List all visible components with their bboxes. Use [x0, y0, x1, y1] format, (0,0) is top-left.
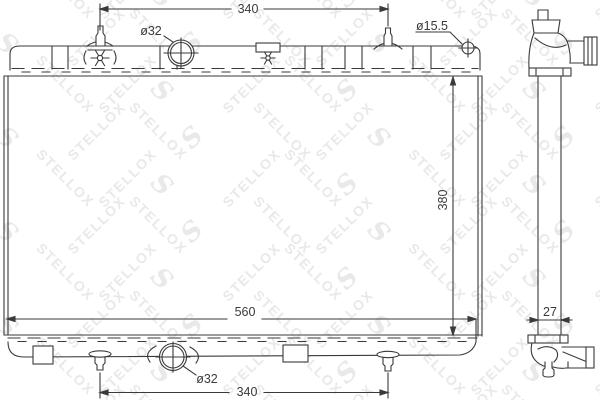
dimension-labels: 340 ø32 ø15.5 380 560 340 ø32 27: [140, 2, 557, 399]
core-outline: [4, 76, 482, 336]
bottom-header-crimp-line: [8, 338, 477, 342]
dim-overall-width-label: 560: [235, 305, 256, 319]
dim-core-height: [451, 77, 456, 335]
side-filler-neck: [529, 10, 568, 68]
sensor-bracket: [256, 43, 280, 64]
top-filler-port: [164, 38, 198, 68]
dim-core-height-label: 380: [436, 190, 450, 211]
dim-bleed-hole-leader: [416, 32, 462, 44]
top-tank: [10, 46, 480, 70]
side-top-flange: [529, 68, 571, 76]
side-view: [527, 10, 597, 377]
side-top-hose-fitting: [567, 37, 597, 65]
bottom-bracket-right: [283, 345, 308, 362]
side-drain-plug: [543, 362, 568, 377]
bleed-hole: [459, 39, 477, 57]
radiator-drawing-page: SSTELLOXSTELLOXSSTELLOXSTELLOXSSTELLOXST…: [0, 0, 600, 400]
fan-symbol-left: [84, 50, 116, 66]
top-header-crimp-line: [12, 69, 478, 73]
dim-side-depth-label: 27: [543, 305, 557, 319]
bottom-inlet-port: [148, 342, 199, 372]
side-core-column: [538, 76, 561, 335]
dim-bleed-hole-label: ø15.5: [416, 19, 448, 33]
dim-bottom-port-label: ø32: [196, 372, 218, 386]
dim-top-port-leader: [164, 36, 173, 42]
dim-top-width-label: 340: [238, 2, 259, 16]
dim-bottom-port-leader: [183, 366, 196, 375]
drawing-linework: [4, 4, 597, 398]
dim-top-port-label: ø32: [140, 24, 162, 38]
side-outlet-pipe: [562, 347, 594, 368]
bottom-bracket-left: [33, 346, 53, 364]
bottom-tank: [8, 342, 476, 364]
bottom-pin-right: [377, 351, 399, 371]
bottom-pin-left: [89, 351, 111, 370]
dim-overall-width: [7, 317, 476, 342]
side-bottom-flange: [528, 335, 568, 343]
radiator-technical-drawing: 340 ø32 ø15.5 380 560 340 ø32 27: [0, 0, 600, 400]
dim-bottom-width-label: 340: [237, 385, 258, 399]
front-view: [4, 4, 482, 398]
